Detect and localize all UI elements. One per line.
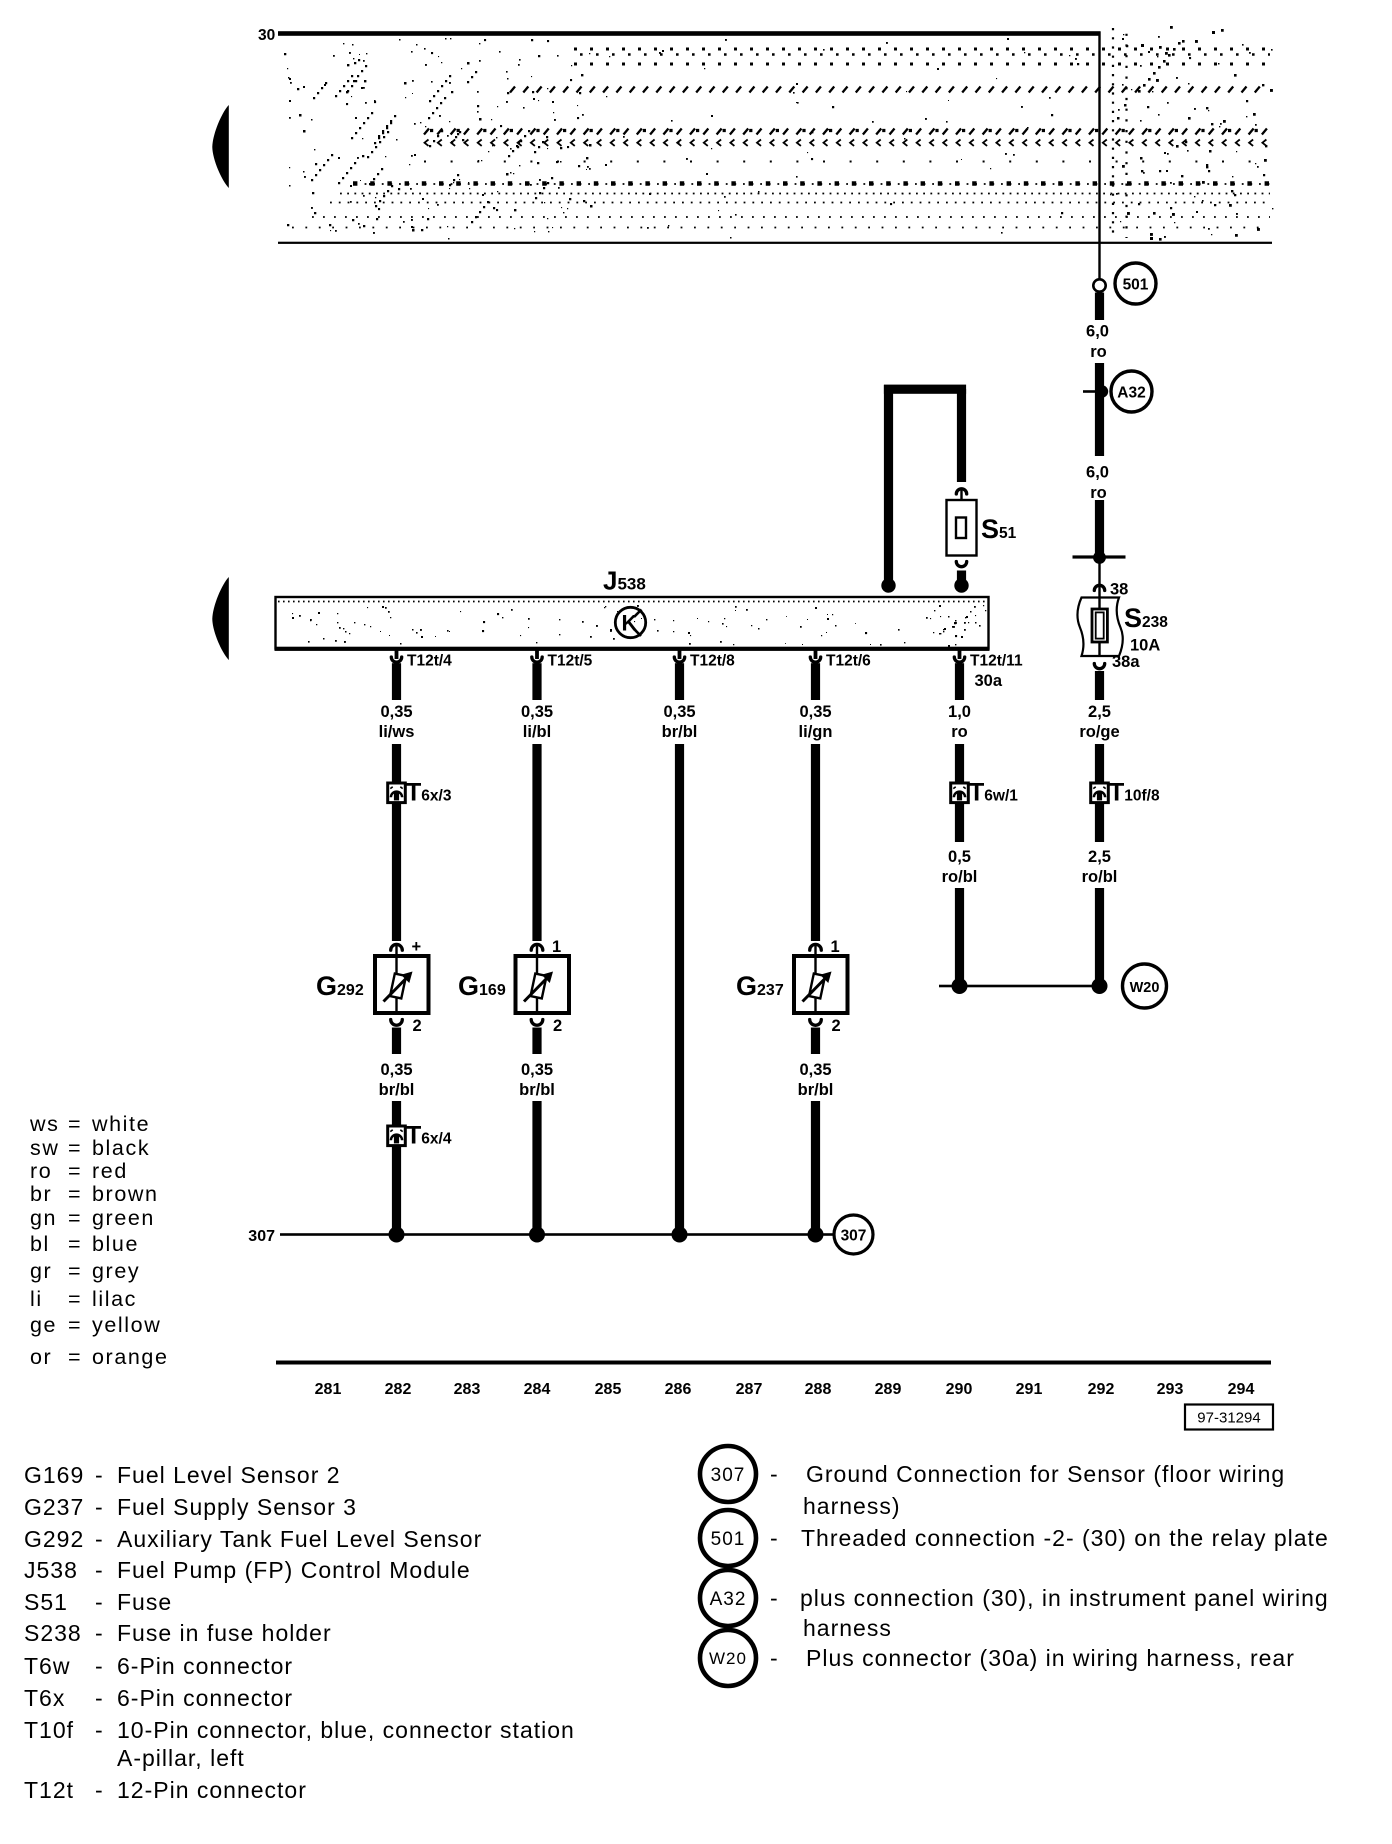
svg-text:plus connection (30), in instr: plus connection (30), in instrument pane… [800, 1585, 1329, 1611]
svg-text:=: = [68, 1259, 82, 1283]
svg-text:Fuse: Fuse [117, 1589, 172, 1615]
svg-text:281: 281 [315, 1381, 342, 1398]
svg-text:A32: A32 [710, 1589, 747, 1610]
svg-text:W20: W20 [709, 1649, 747, 1668]
svg-text:1: 1 [831, 938, 840, 956]
svg-text:-: - [95, 1526, 104, 1552]
svg-text:-: - [95, 1620, 104, 1646]
svg-text:2: 2 [832, 1017, 841, 1035]
svg-text:harness): harness) [803, 1493, 900, 1519]
svg-text:501: 501 [1123, 277, 1149, 294]
svg-text:G169: G169 [458, 971, 506, 1001]
svg-text:-: - [770, 1525, 779, 1551]
svg-text:lilac: lilac [92, 1287, 137, 1311]
svg-text:T6x/3: T6x/3 [406, 779, 452, 807]
svg-text:284: 284 [524, 1381, 551, 1398]
svg-text:-: - [95, 1653, 104, 1679]
svg-text:yellow: yellow [92, 1313, 161, 1337]
svg-text:red: red [92, 1159, 128, 1183]
svg-text:0,35: 0,35 [799, 703, 831, 721]
svg-text:A32: A32 [1117, 385, 1145, 402]
svg-text:6,0: 6,0 [1086, 323, 1109, 341]
svg-text:ro: ro [30, 1159, 52, 1183]
svg-text:+: + [412, 938, 422, 956]
svg-text:289: 289 [875, 1381, 902, 1398]
svg-text:br: br [30, 1182, 52, 1206]
svg-text:S51: S51 [24, 1589, 68, 1615]
svg-text:38a: 38a [1112, 653, 1140, 671]
svg-text:bl: bl [30, 1232, 50, 1256]
svg-text:0,35: 0,35 [380, 703, 412, 721]
svg-text:W20: W20 [1130, 980, 1160, 996]
svg-text:G169: G169 [24, 1462, 84, 1488]
svg-text:br/bl: br/bl [662, 723, 698, 741]
svg-text:J538: J538 [24, 1557, 78, 1583]
svg-text:-: - [770, 1461, 779, 1487]
svg-text:ro: ro [1090, 484, 1107, 502]
svg-text:ro/ge: ro/ge [1079, 723, 1119, 741]
svg-text:blue: blue [92, 1232, 139, 1256]
svg-text:2,5: 2,5 [1088, 848, 1111, 866]
svg-text:10A: 10A [1130, 637, 1160, 655]
svg-text:T10f/8: T10f/8 [1109, 779, 1160, 807]
svg-text:gr: gr [30, 1259, 52, 1283]
svg-text:6-Pin connector: 6-Pin connector [117, 1685, 293, 1711]
svg-text:black: black [92, 1136, 150, 1160]
svg-text:6-Pin connector: 6-Pin connector [117, 1653, 293, 1679]
svg-text:293: 293 [1157, 1381, 1184, 1398]
svg-text:-: - [95, 1717, 104, 1743]
svg-text:orange: orange [92, 1345, 169, 1369]
svg-text:2,5: 2,5 [1088, 703, 1111, 721]
svg-text:-: - [95, 1589, 104, 1615]
svg-text:307: 307 [711, 1465, 746, 1486]
svg-text:ro/bl: ro/bl [1082, 868, 1118, 886]
svg-text:br/bl: br/bl [379, 1081, 415, 1099]
svg-text:6,0: 6,0 [1086, 464, 1109, 482]
svg-text:G292: G292 [24, 1526, 84, 1552]
svg-text:294: 294 [1228, 1381, 1255, 1398]
svg-text:307: 307 [841, 1228, 867, 1245]
svg-text:307: 307 [248, 1228, 275, 1245]
svg-text:ws: ws [29, 1112, 59, 1136]
svg-text:T12t/6: T12t/6 [826, 653, 871, 670]
svg-text:T6w/1: T6w/1 [969, 779, 1018, 807]
svg-text:T6x/4: T6x/4 [406, 1122, 452, 1150]
svg-text:-: - [770, 1585, 779, 1611]
svg-text:Auxiliary Tank Fuel Level Sens: Auxiliary Tank Fuel Level Sensor [117, 1526, 482, 1552]
svg-text:A-pillar, left: A-pillar, left [117, 1745, 245, 1771]
svg-text:=: = [68, 1206, 82, 1230]
svg-text:Fuse in fuse holder: Fuse in fuse holder [117, 1620, 332, 1646]
svg-text:0,35: 0,35 [380, 1061, 412, 1079]
svg-text:br/bl: br/bl [798, 1081, 834, 1099]
svg-text:=: = [68, 1159, 82, 1183]
svg-text:30a: 30a [975, 672, 1003, 690]
svg-text:=: = [68, 1232, 82, 1256]
svg-text:harness: harness [803, 1615, 892, 1641]
svg-text:grey: grey [92, 1259, 140, 1283]
svg-text:Threaded connection -2- (30) o: Threaded connection -2- (30) on the rela… [801, 1525, 1329, 1551]
svg-text:T6w: T6w [24, 1653, 70, 1679]
svg-text:0,35: 0,35 [799, 1061, 831, 1079]
svg-text:-: - [770, 1645, 779, 1671]
svg-text:282: 282 [385, 1381, 412, 1398]
svg-text:-: - [95, 1685, 104, 1711]
svg-text:J538: J538 [603, 566, 646, 596]
svg-text:97-31294: 97-31294 [1197, 1410, 1260, 1427]
svg-text:green: green [92, 1206, 155, 1230]
svg-text:sw: sw [30, 1136, 59, 1160]
svg-text:T6x: T6x [24, 1685, 65, 1711]
svg-text:0,5: 0,5 [948, 848, 971, 866]
svg-text:292: 292 [1088, 1381, 1115, 1398]
svg-text:ro: ro [951, 723, 968, 741]
svg-text:Ground Connection for Sensor (: Ground Connection for Sensor (floor wiri… [806, 1461, 1285, 1487]
svg-text:1,0: 1,0 [948, 703, 971, 721]
svg-text:290: 290 [946, 1381, 973, 1398]
svg-text:G292: G292 [316, 971, 364, 1001]
svg-text:=: = [68, 1313, 82, 1337]
svg-text:=: = [68, 1287, 82, 1311]
svg-text:gn: gn [30, 1206, 57, 1230]
svg-text:2: 2 [553, 1017, 562, 1035]
svg-text:12-Pin connector: 12-Pin connector [117, 1777, 307, 1803]
svg-text:li/gn: li/gn [799, 723, 833, 741]
svg-text:291: 291 [1016, 1381, 1043, 1398]
svg-text:li/ws: li/ws [379, 723, 415, 741]
svg-text:-: - [95, 1462, 104, 1488]
svg-text:T12t/4: T12t/4 [407, 653, 452, 670]
svg-text:=: = [68, 1182, 82, 1206]
svg-text:S51: S51 [981, 514, 1017, 544]
svg-text:G237: G237 [24, 1494, 84, 1520]
svg-text:T12t/11: T12t/11 [970, 653, 1023, 670]
svg-text:ro: ro [1090, 343, 1107, 361]
svg-text:2: 2 [413, 1017, 422, 1035]
svg-text:-: - [95, 1557, 104, 1583]
svg-text:286: 286 [665, 1381, 692, 1398]
svg-text:285: 285 [595, 1381, 622, 1398]
svg-text:283: 283 [454, 1381, 481, 1398]
svg-text:T12t/5: T12t/5 [548, 653, 593, 670]
svg-text:30: 30 [258, 27, 275, 44]
svg-text:T12t: T12t [24, 1777, 74, 1803]
svg-text:G237: G237 [736, 971, 784, 1001]
svg-text:br/bl: br/bl [519, 1081, 555, 1099]
svg-text:38: 38 [1110, 581, 1128, 599]
svg-text:Fuel Pump (FP) Control Module: Fuel Pump (FP) Control Module [117, 1557, 471, 1583]
svg-text:=: = [68, 1112, 82, 1136]
svg-text:or: or [30, 1345, 52, 1369]
svg-text:S238: S238 [1124, 603, 1168, 633]
svg-text:Fuel Supply Sensor 3: Fuel Supply Sensor 3 [117, 1494, 357, 1520]
svg-text:ro/bl: ro/bl [942, 868, 978, 886]
svg-text:ge: ge [30, 1313, 57, 1337]
svg-text:0,35: 0,35 [663, 703, 695, 721]
svg-text:Plus connector (30a) in wiring: Plus connector (30a) in wiring harness, … [806, 1645, 1295, 1671]
svg-text:white: white [91, 1112, 150, 1136]
svg-text:501: 501 [711, 1529, 746, 1550]
svg-text:-: - [95, 1777, 104, 1803]
svg-text:=: = [68, 1345, 82, 1369]
svg-text:brown: brown [92, 1182, 159, 1206]
svg-text:T10f: T10f [24, 1717, 74, 1743]
svg-text:li: li [30, 1287, 43, 1311]
svg-text:-: - [95, 1494, 104, 1520]
svg-text:288: 288 [805, 1381, 832, 1398]
svg-text:0,35: 0,35 [521, 703, 553, 721]
svg-text:li/bl: li/bl [523, 723, 551, 741]
svg-text:10-Pin connector, blue, connec: 10-Pin connector, blue, connector statio… [117, 1717, 575, 1743]
svg-text:1: 1 [552, 938, 561, 956]
svg-text:S238: S238 [24, 1620, 82, 1646]
svg-text:Fuel Level Sensor 2: Fuel Level Sensor 2 [117, 1462, 341, 1488]
svg-text:0,35: 0,35 [521, 1061, 553, 1079]
svg-text:287: 287 [736, 1381, 763, 1398]
svg-text:T12t/8: T12t/8 [690, 653, 735, 670]
svg-text:=: = [68, 1136, 82, 1160]
